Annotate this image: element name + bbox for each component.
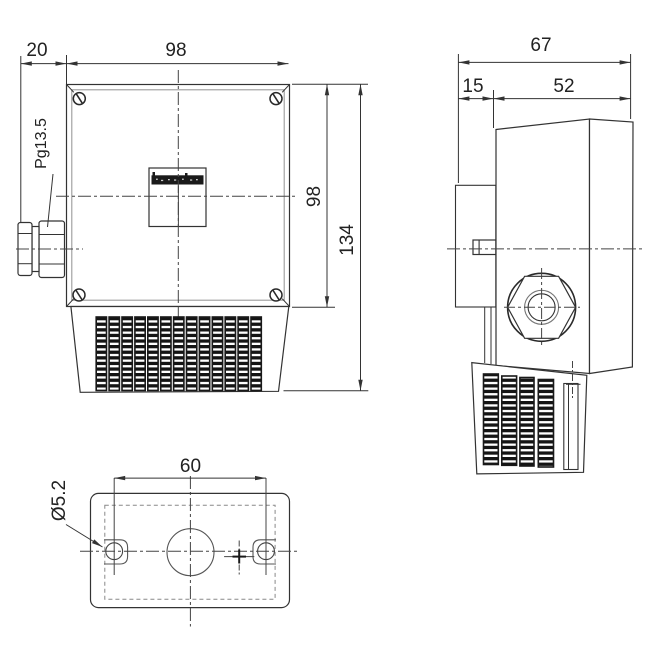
svg-text:15: 15 [462, 76, 483, 97]
svg-text:134: 134 [337, 224, 358, 256]
svg-text:98: 98 [165, 40, 186, 61]
svg-text:67: 67 [530, 35, 551, 56]
svg-text:60: 60 [180, 456, 201, 477]
svg-text:Pg13.5: Pg13.5 [33, 118, 50, 169]
svg-text:20: 20 [26, 40, 47, 61]
svg-text:Ø5.2: Ø5.2 [49, 480, 70, 521]
svg-text:52: 52 [553, 76, 574, 97]
svg-text:98: 98 [304, 186, 325, 207]
